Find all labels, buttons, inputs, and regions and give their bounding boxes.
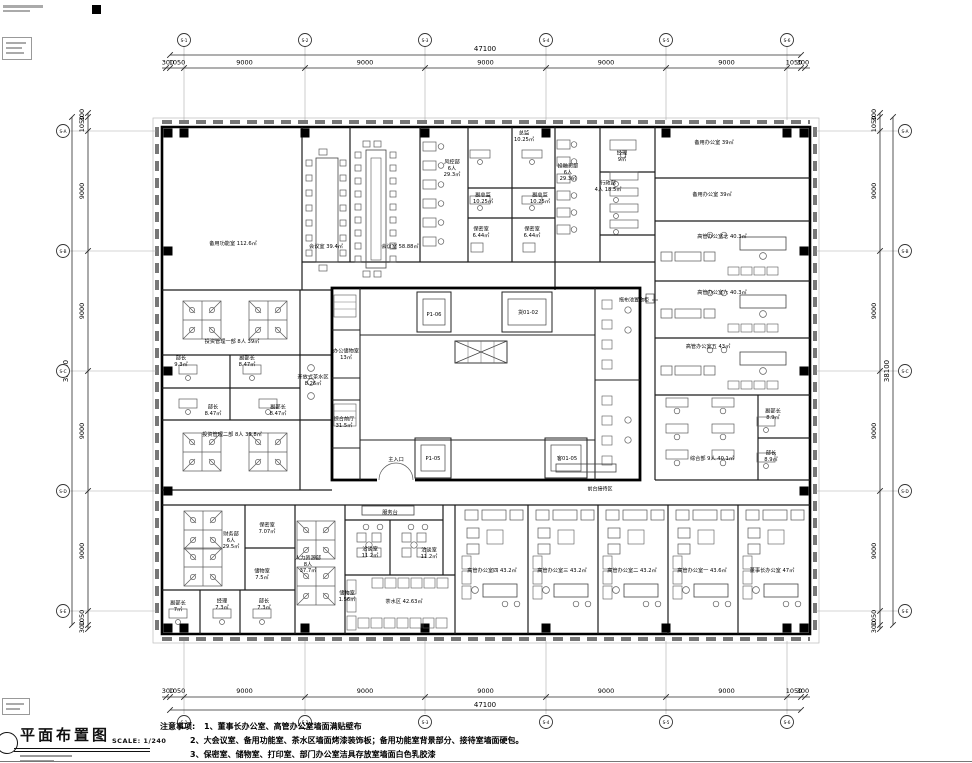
plan-shape (610, 172, 638, 180)
room-label: 经理7.3㎡ (215, 597, 229, 611)
plan-shape (340, 205, 346, 211)
cabinet-icon (347, 616, 356, 630)
axis-bubble-label: S-5 (663, 720, 670, 725)
plan-shape (183, 301, 195, 313)
plan-shape (374, 141, 381, 147)
plan-shape (306, 220, 312, 226)
room-label: 副部长8.47㎡ (270, 403, 288, 417)
plan-shape (355, 191, 361, 197)
column (662, 624, 671, 633)
chair-icon (530, 206, 535, 211)
sofa-icon (748, 528, 760, 538)
room-label: 副部长8.9㎡ (765, 407, 781, 421)
axis-bubble-label: S-C (901, 369, 908, 374)
sofa-icon (608, 528, 620, 538)
cabinet-icon (676, 510, 689, 520)
plan-shape (340, 175, 346, 181)
plan-shape (402, 548, 411, 557)
axis-bubble-label: S-3 (422, 38, 429, 43)
axis-bubble-label: S-4 (543, 720, 550, 725)
plan-shape (363, 141, 370, 147)
plan-shape (183, 433, 195, 445)
plan-shape (184, 511, 196, 523)
plan-shape (390, 152, 396, 158)
plan-shape (297, 521, 309, 533)
desk-icon (694, 584, 728, 597)
plan-shape (374, 271, 381, 277)
dim-total-label: 47100 (474, 701, 496, 709)
drawing-sheet: 3001050900090009000900090001050300471003… (0, 0, 972, 763)
room-label: 投资管理二部 8人 39.8㎡ (202, 430, 262, 438)
plan-shape (249, 459, 261, 471)
dim-label: 9000 (78, 303, 86, 320)
room-label: 综合部 9人 40.1㎡ (690, 454, 735, 462)
axis-bubble-label: S-B (902, 249, 909, 254)
cabinet-icon (743, 586, 752, 599)
room-label: 备用办公室 39㎡ (694, 138, 734, 146)
annotation-label: 前台接待区 (587, 486, 612, 493)
chair-icon (683, 587, 690, 594)
plan-shape (355, 204, 361, 210)
sofa-icon (763, 510, 787, 520)
column (164, 487, 173, 496)
counter-icon (436, 618, 447, 628)
room-label: 茶水区 42.63㎡ (385, 597, 423, 605)
title-note-line (20, 755, 72, 757)
chair-icon (573, 601, 579, 607)
cabinet-icon (673, 586, 682, 599)
coffee-table-icon (698, 530, 714, 544)
plan-shape (470, 150, 490, 158)
counter-icon (410, 618, 421, 628)
chair-icon (783, 601, 789, 607)
plan-shape (666, 450, 688, 459)
chair-icon (422, 524, 428, 530)
sofa-icon (704, 366, 715, 375)
plan-shape (210, 511, 222, 523)
column (800, 247, 809, 256)
plan-shape (209, 301, 221, 313)
chair-icon (176, 620, 181, 625)
room-label: 高管办公室六 40.3㎡ (697, 288, 747, 296)
sofa-icon (678, 528, 690, 538)
plan-shape (390, 204, 396, 210)
room-label: 副部长7㎡ (170, 599, 186, 613)
plan-shape (275, 327, 287, 339)
room-label: 高管办公室三 43.2㎡ (537, 566, 587, 574)
corner-text-mark (3, 5, 43, 8)
plan-shape (666, 424, 688, 433)
plan-shape (323, 547, 335, 559)
plan-shape (184, 548, 196, 560)
room-label: 综合前厅31.5㎡ (334, 415, 355, 429)
plan-shape (340, 235, 346, 241)
chair-icon (571, 142, 577, 148)
axis-bubble-label: S-2 (302, 38, 309, 43)
plan-shape (372, 533, 381, 542)
counter-icon (358, 618, 369, 628)
room-label: 保密室6.44㎡ (524, 225, 542, 239)
plan-shape (357, 533, 366, 542)
column (164, 367, 173, 376)
sofa-icon (704, 309, 715, 318)
axis-bubble-label: S-6 (784, 38, 791, 43)
plan-shape (522, 150, 542, 158)
plan-shape (210, 574, 222, 586)
chair-icon (438, 182, 444, 188)
sofa-icon (661, 366, 672, 375)
dim-label: 1050 (169, 59, 186, 67)
plan-shape (249, 301, 261, 313)
plan-shape (323, 567, 335, 579)
plan-shape (402, 533, 411, 542)
chair-icon (760, 311, 767, 318)
plan-shape (423, 161, 436, 170)
room-label: 保密室7.07㎡ (259, 521, 277, 535)
plan-shape (423, 218, 436, 227)
cabinet-icon (741, 324, 752, 332)
chair-icon (674, 460, 680, 466)
dim-label: 9000 (870, 543, 878, 560)
chair-icon (363, 524, 369, 530)
sofa-icon (661, 252, 672, 261)
coffee-table-icon (628, 530, 644, 544)
sofa-icon (675, 309, 701, 318)
room-label: 高管办公室七 40.3㎡ (697, 232, 747, 240)
desk-icon (554, 584, 588, 597)
plan-shape (355, 256, 361, 262)
cabinet-icon (728, 267, 739, 275)
room-label: 部长8.47㎡ (205, 403, 223, 417)
plan-shape (423, 142, 436, 151)
counter-icon (385, 578, 396, 588)
column (301, 129, 310, 138)
corner-legend-box (2, 698, 30, 715)
plan-shape (183, 459, 195, 471)
room-label: 备用功能室 112.6㎡ (209, 239, 257, 247)
wc-stall-icon (602, 436, 612, 445)
axis-bubble-label: S-D (59, 489, 66, 494)
chair-icon (655, 601, 661, 607)
chair-icon (220, 620, 225, 625)
wc-stall-icon (602, 396, 612, 405)
room-label: 主入口 (388, 455, 404, 463)
room-label: 开放式茶水区8.26㎡ (297, 373, 328, 387)
plan-shape (306, 250, 312, 256)
chair-icon (753, 587, 760, 594)
cabinet-icon (462, 586, 471, 599)
cabinet-icon (746, 510, 759, 520)
chair-icon (585, 601, 591, 607)
chair-icon (530, 160, 535, 165)
plan-shape (306, 235, 312, 241)
desk-icon (764, 584, 798, 597)
cabinet-icon (754, 267, 765, 275)
axis-bubble-label: S-1 (181, 38, 188, 43)
plan-shape (340, 160, 346, 166)
cabinet-icon (581, 510, 594, 520)
room-label: 部长9.3㎡ (174, 354, 188, 368)
room-label: 副部长8.47㎡ (239, 354, 257, 368)
corner-legend-box (2, 37, 32, 60)
room-label: 会议室 58.88㎡ (381, 242, 419, 250)
chair-icon (614, 198, 619, 203)
counter-icon (437, 578, 448, 588)
column (421, 129, 430, 138)
plan-shape (323, 521, 335, 533)
room-label: 副总监10.25㎡ (473, 191, 494, 205)
chair-icon (260, 620, 265, 625)
plan-shape (423, 180, 436, 189)
cabinet-icon (510, 510, 523, 520)
dim-label: 9000 (357, 59, 374, 67)
dim-label: 300 (797, 687, 809, 695)
drawing-title: 平面布置图 (20, 724, 110, 745)
plan-shape (210, 548, 222, 560)
room-label: 会议室 39.4㎡ (309, 242, 344, 250)
plan-shape (249, 327, 261, 339)
column (662, 129, 671, 138)
sofa-icon (675, 252, 701, 261)
axis-bubble-label: S-A (902, 129, 909, 134)
dim-label: 9000 (870, 183, 878, 200)
plan-shape (340, 190, 346, 196)
plan-shape (471, 243, 483, 252)
column (783, 624, 792, 633)
shelf-icon (334, 295, 356, 317)
cabinet-icon (767, 324, 778, 332)
dim-label: 9000 (236, 59, 253, 67)
scale-label: SCALE: 1/240 (112, 737, 166, 745)
chair-icon (377, 524, 383, 530)
axis-bubble-label: S-C (59, 369, 66, 374)
plan-shape (390, 178, 396, 184)
cabinet-icon (791, 510, 804, 520)
room-label: 保密室6.44㎡ (473, 225, 491, 239)
plan-shape (184, 537, 196, 549)
plan-shape (355, 243, 361, 249)
axis-bubble-label: S-5 (663, 38, 670, 43)
cabinet-icon (754, 381, 765, 389)
wc-basin-icon (625, 327, 631, 333)
coffee-table-icon (558, 530, 574, 544)
desk-icon (483, 584, 517, 597)
cabinet-icon (767, 381, 778, 389)
room-label: 经理9㎡ (617, 149, 628, 163)
room-label: 总监10.25㎡ (514, 129, 535, 143)
core-inner-walls (332, 288, 640, 480)
counter-icon (411, 578, 422, 588)
plan-shape (390, 165, 396, 171)
plan-shape (306, 190, 312, 196)
chair-icon (760, 368, 767, 375)
sofa-icon (467, 544, 479, 554)
plan-shape (523, 243, 535, 252)
chair-icon (613, 587, 620, 594)
cabinet-icon (536, 510, 549, 520)
chair-icon (674, 434, 680, 440)
sofa-icon (553, 510, 577, 520)
dim-label: 9000 (718, 59, 735, 67)
counter-icon (424, 578, 435, 588)
cabinet-icon (721, 510, 734, 520)
plan-shape (610, 220, 638, 228)
cabinet-icon (606, 510, 619, 520)
axis-bubble-label: S-E (60, 609, 67, 614)
dim-label: 9000 (78, 183, 86, 200)
chair-icon (614, 230, 619, 235)
axis-bubble-label: S-6 (784, 720, 791, 725)
room-label: 部长8.9㎡ (764, 449, 778, 463)
desk-icon (740, 237, 786, 250)
entrance-opening (377, 474, 415, 485)
dim-label: 9000 (870, 423, 878, 440)
dim-label: 9000 (78, 543, 86, 560)
cabinet-icon (465, 510, 478, 520)
plan-shape (306, 175, 312, 181)
plan-shape (666, 398, 688, 407)
sofa-icon (661, 309, 672, 318)
dim-label: 9000 (477, 687, 494, 695)
axis-bubble-label: S-E (902, 609, 909, 614)
chair-icon (760, 253, 767, 260)
plan-shape (557, 225, 570, 234)
dim-label: 9000 (870, 303, 878, 320)
plan-shape (306, 160, 312, 166)
room-label: 副总监10.25㎡ (530, 191, 551, 205)
dim-label: 300 (78, 621, 86, 633)
cabinet-icon (728, 381, 739, 389)
sofa-icon (623, 510, 647, 520)
cabinet-icon (754, 324, 765, 332)
sofa-icon (678, 544, 690, 554)
plan-shape (417, 533, 426, 542)
counter-icon (372, 578, 383, 588)
room-label: 洽谈室11.2㎡ (421, 546, 439, 560)
dim-label: 9000 (78, 423, 86, 440)
corner-mark (92, 5, 101, 14)
wc-basin-icon (625, 437, 631, 443)
plan-shape (355, 152, 361, 158)
room-label: 洽谈室11.2㎡ (362, 545, 380, 559)
column (164, 624, 173, 633)
chair-icon (250, 376, 255, 381)
chair-icon (614, 214, 619, 219)
cabinet-icon (767, 267, 778, 275)
dim-label: 9000 (477, 59, 494, 67)
counter-icon (397, 618, 408, 628)
plan-shape (610, 204, 638, 212)
chair-icon (438, 163, 444, 169)
plan-shape (209, 327, 221, 339)
sofa-icon (482, 510, 506, 520)
annotation-label: 拖布池置物柜 (619, 297, 649, 304)
plan-shape (179, 399, 197, 408)
dim-label: 1050 (870, 116, 878, 133)
plan-shape (210, 537, 222, 549)
dim-label: 300 (797, 59, 809, 67)
sofa-icon (538, 544, 550, 554)
chair-icon (571, 210, 577, 216)
plan-shape (340, 250, 346, 256)
plan-shape (209, 459, 221, 471)
plan-shape (712, 398, 734, 407)
chair-icon (514, 601, 520, 607)
room-label: 服务台 (382, 508, 398, 516)
room-label: 客01-05 (557, 454, 577, 462)
chair-icon (186, 410, 191, 415)
desk-icon (624, 584, 658, 597)
dim-label: 300 (870, 621, 878, 633)
room-label: 高管办公室二 43.2㎡ (607, 566, 657, 574)
counter-icon (384, 618, 395, 628)
dim-total-label: 38100 (883, 360, 891, 382)
column (542, 129, 551, 138)
chair-icon (725, 601, 731, 607)
chair-icon (571, 193, 577, 199)
room-label: 高管办公室一 43.6㎡ (677, 566, 727, 574)
column (800, 487, 809, 496)
corner-text-mark (3, 10, 30, 12)
chair-icon (643, 601, 649, 607)
cabinet-icon (651, 510, 664, 520)
plan-shape (319, 265, 327, 271)
chair-icon (411, 542, 417, 548)
wc-stall-icon (602, 360, 612, 369)
conference-table-icon (371, 158, 381, 260)
room-label: 储物室7.5㎡ (254, 567, 270, 581)
plan-shape (423, 199, 436, 208)
plan-shape (184, 574, 196, 586)
room-label: 货01-02 (518, 308, 538, 316)
plan-shape (390, 191, 396, 197)
chair-icon (764, 428, 769, 433)
plan-shape (390, 230, 396, 236)
plan-shape (610, 140, 636, 150)
cabinet-icon (728, 324, 739, 332)
plan-shape (275, 433, 287, 445)
axis-bubble-label: S-D (901, 489, 908, 494)
plan-shape (319, 149, 327, 155)
column (783, 129, 792, 138)
room-label: P1-06 (427, 312, 442, 318)
sofa-icon (693, 510, 717, 520)
dim-label: 1050 (169, 687, 186, 695)
plan-shape (423, 237, 436, 246)
plan-shape (323, 593, 335, 605)
room-label: 备用办公室 39㎡ (692, 190, 732, 198)
chair-icon (720, 408, 726, 414)
room-label: 财务部6人29.5㎡ (223, 530, 241, 550)
chair-icon (720, 434, 726, 440)
plan-shape (390, 256, 396, 262)
cabinet-icon (741, 267, 752, 275)
room-label: 董事长办公室 47㎡ (750, 566, 795, 574)
sofa-icon (608, 544, 620, 554)
wc-stall-icon (602, 416, 612, 425)
plan-shape (355, 178, 361, 184)
conference-table-icon (366, 150, 386, 268)
plan-shape (355, 165, 361, 171)
tea-table-icon (308, 393, 315, 400)
cabinet-icon (741, 381, 752, 389)
chair-icon (502, 601, 508, 607)
column (800, 129, 809, 138)
axis-bubble-label: S-A (60, 129, 67, 134)
chair-icon (186, 376, 191, 381)
column (180, 129, 189, 138)
sofa-icon (748, 544, 760, 554)
